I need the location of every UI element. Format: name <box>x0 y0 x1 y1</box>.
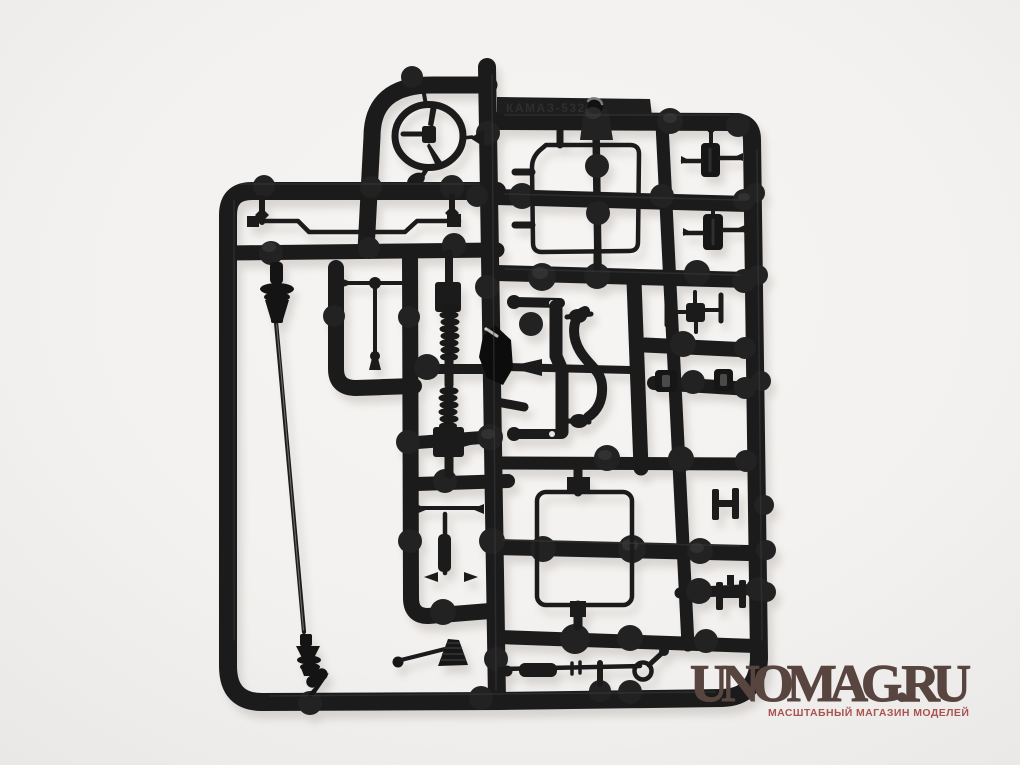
svg-text:UNOMAG.RU: UNOMAG.RU <box>690 655 972 713</box>
svg-text:МАСШТАБНЫЙ МАГАЗИН МОДЕЛЕЙ: МАСШТАБНЫЙ МАГАЗИН МОДЕЛЕЙ <box>768 706 970 719</box>
